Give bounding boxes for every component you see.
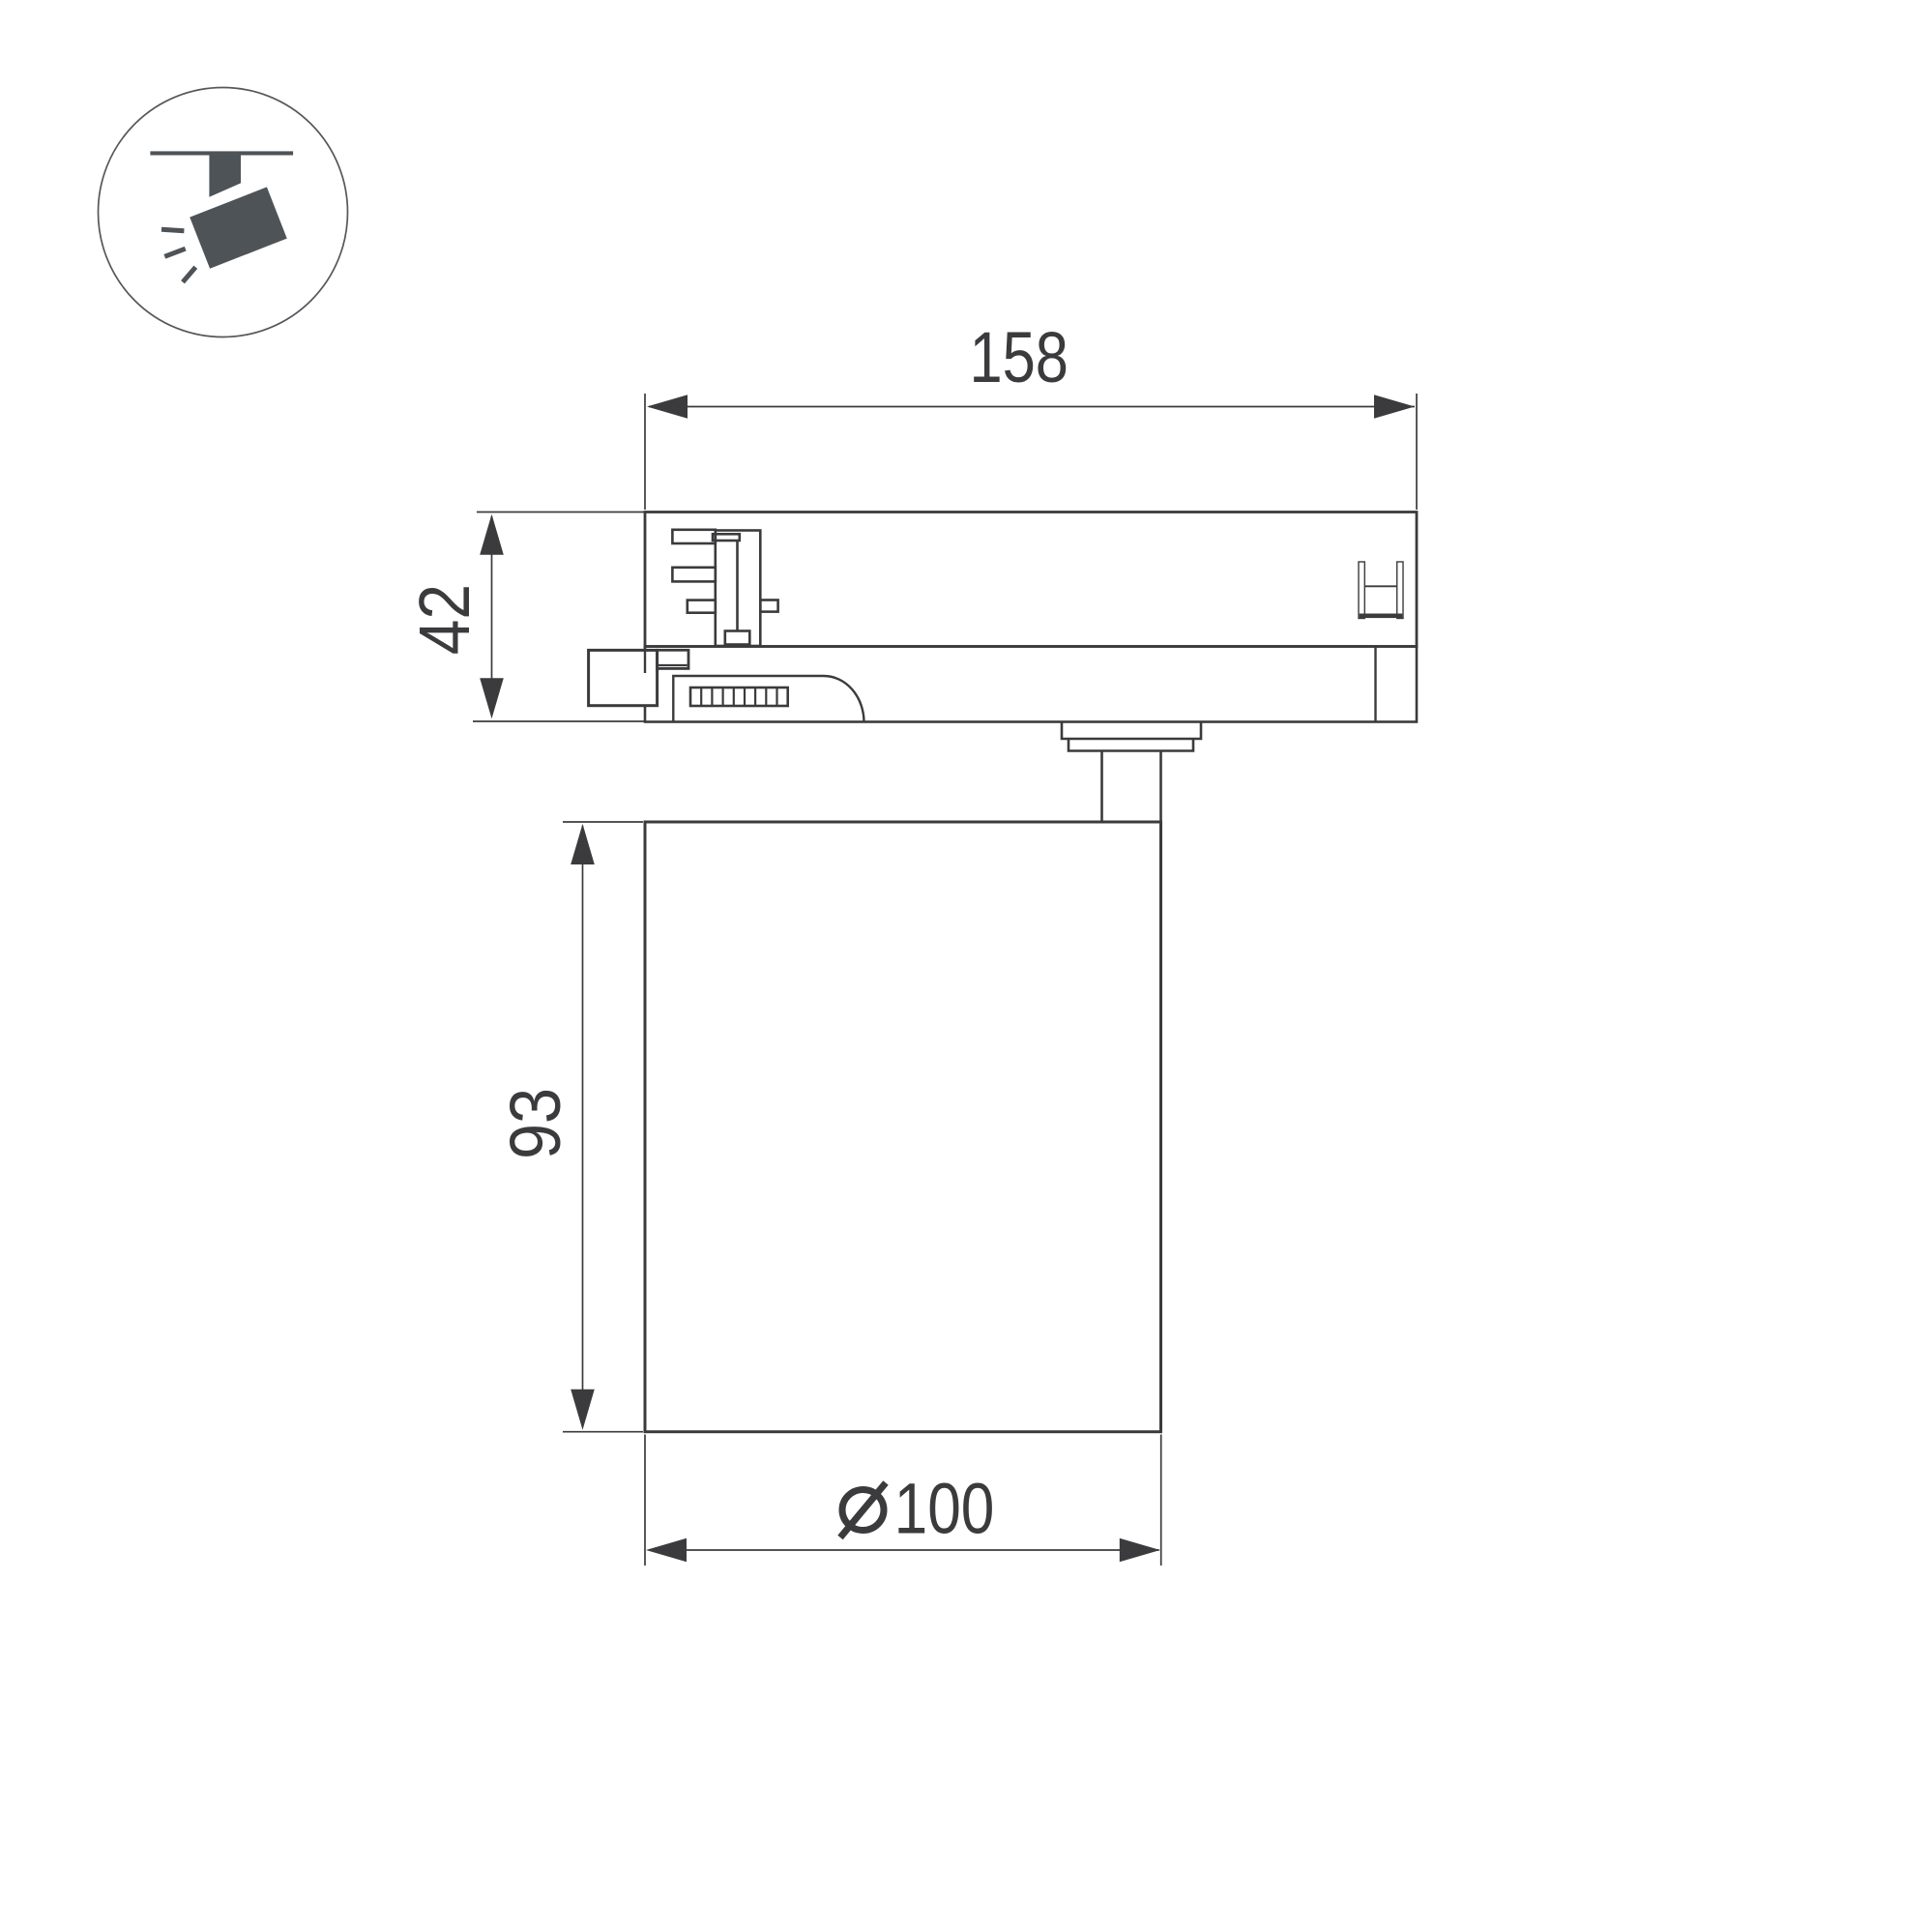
svg-text:158: 158 [969,318,1068,398]
svg-text:100: 100 [894,1469,995,1548]
svg-text:93: 93 [495,1088,575,1159]
svg-text:42: 42 [404,584,483,655]
